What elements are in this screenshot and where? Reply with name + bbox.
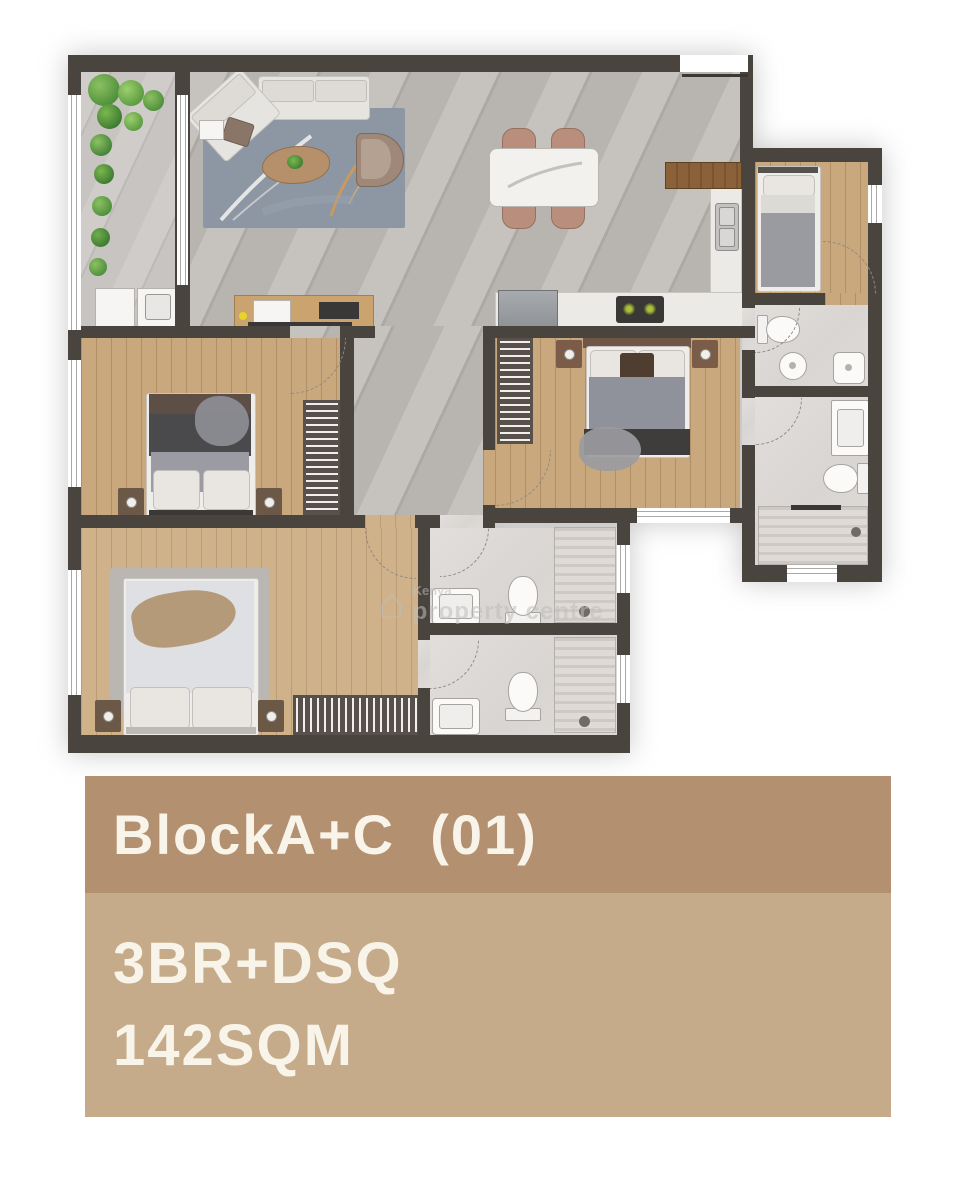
bidet-icon [833,352,865,384]
wall [742,445,755,565]
dsq-door-threshold [825,293,868,305]
window [68,95,81,330]
plant-icon [91,228,110,247]
washing-machine-icon [95,288,135,327]
fridge-icon [498,290,558,328]
bathroom-sink [432,588,480,625]
plant-icon [88,74,120,106]
wall [755,386,868,397]
bed [146,393,256,519]
balcony-sliding-door [177,95,188,285]
wall [418,688,430,735]
bathtub-shower [758,506,868,565]
entrance-door-leaf [682,74,748,77]
window [637,508,730,523]
wall [68,55,753,72]
single-bed [757,166,821,292]
plant-icon [89,258,107,276]
bed [123,578,259,736]
stove-icon [616,296,664,323]
wall [68,326,290,338]
nightstand [95,700,121,732]
laundry-sink-icon [137,288,179,327]
plan-bedrooms: 3BR+DSQ [85,923,891,1005]
kitchen-upper-cabinet [665,162,742,189]
floorplan-listing-image: ⌂ Kenya property centre BlockA+C (01) 3B… [0,0,959,1200]
window [68,570,81,695]
marble-vein [490,149,598,206]
wall [68,735,630,753]
bathroom-sink [432,698,480,735]
toilet-icon [508,576,538,616]
wall [483,326,495,450]
plant-icon [118,80,144,106]
vanity-sink [831,400,869,456]
wall [742,350,755,398]
bathroom3-door-threshold [742,398,755,445]
decor-lamp-icon [239,312,247,320]
plant-icon [90,134,112,156]
wall [483,505,495,528]
dining-table [489,148,599,207]
wall [742,162,755,308]
plant-icon [143,90,164,111]
wall [418,623,617,635]
wall [755,293,825,305]
master-door-threshold [365,515,415,528]
plant-icon [124,112,143,131]
plan-title-bar: BlockA+C (01) [85,776,891,893]
shower-tray [554,637,616,733]
plant-icon [92,196,112,216]
plan-title: BlockA+C (01) [85,802,538,867]
entrance-opening [680,55,748,72]
wall [68,515,365,528]
wardrobe [293,695,420,735]
nightstand [556,340,582,368]
plant-icon [97,104,122,129]
toilet-icon [823,464,858,493]
pedestal-sink-icon [779,352,807,380]
plan-details-panel: 3BR+DSQ 142SQM [85,893,891,1117]
bed [586,346,690,458]
plan-area: 142SQM [85,1005,891,1087]
nightstand [118,488,144,516]
hallway-floor [354,326,483,518]
toilet-icon [508,672,538,712]
wardrobe [303,400,341,516]
plant-icon [94,164,114,184]
nightstand [256,488,282,516]
window [868,185,882,223]
wall [742,148,882,162]
shower-tray [554,527,616,623]
wall [345,326,375,338]
window [68,360,81,487]
wall [418,515,430,640]
bedroom3-door-threshold [483,450,495,505]
nightstand [692,340,718,368]
bedroom2-door-threshold [290,326,345,338]
window [617,545,630,593]
nightstand [258,700,284,732]
wardrobe [497,338,533,444]
window [617,655,630,703]
window [787,565,837,582]
side-table [199,120,224,140]
kitchen-sink-icon [715,203,739,251]
bathroom2-door-threshold [418,640,430,688]
floor-plan: ⌂ Kenya property centre [0,0,959,780]
wall [483,326,755,338]
